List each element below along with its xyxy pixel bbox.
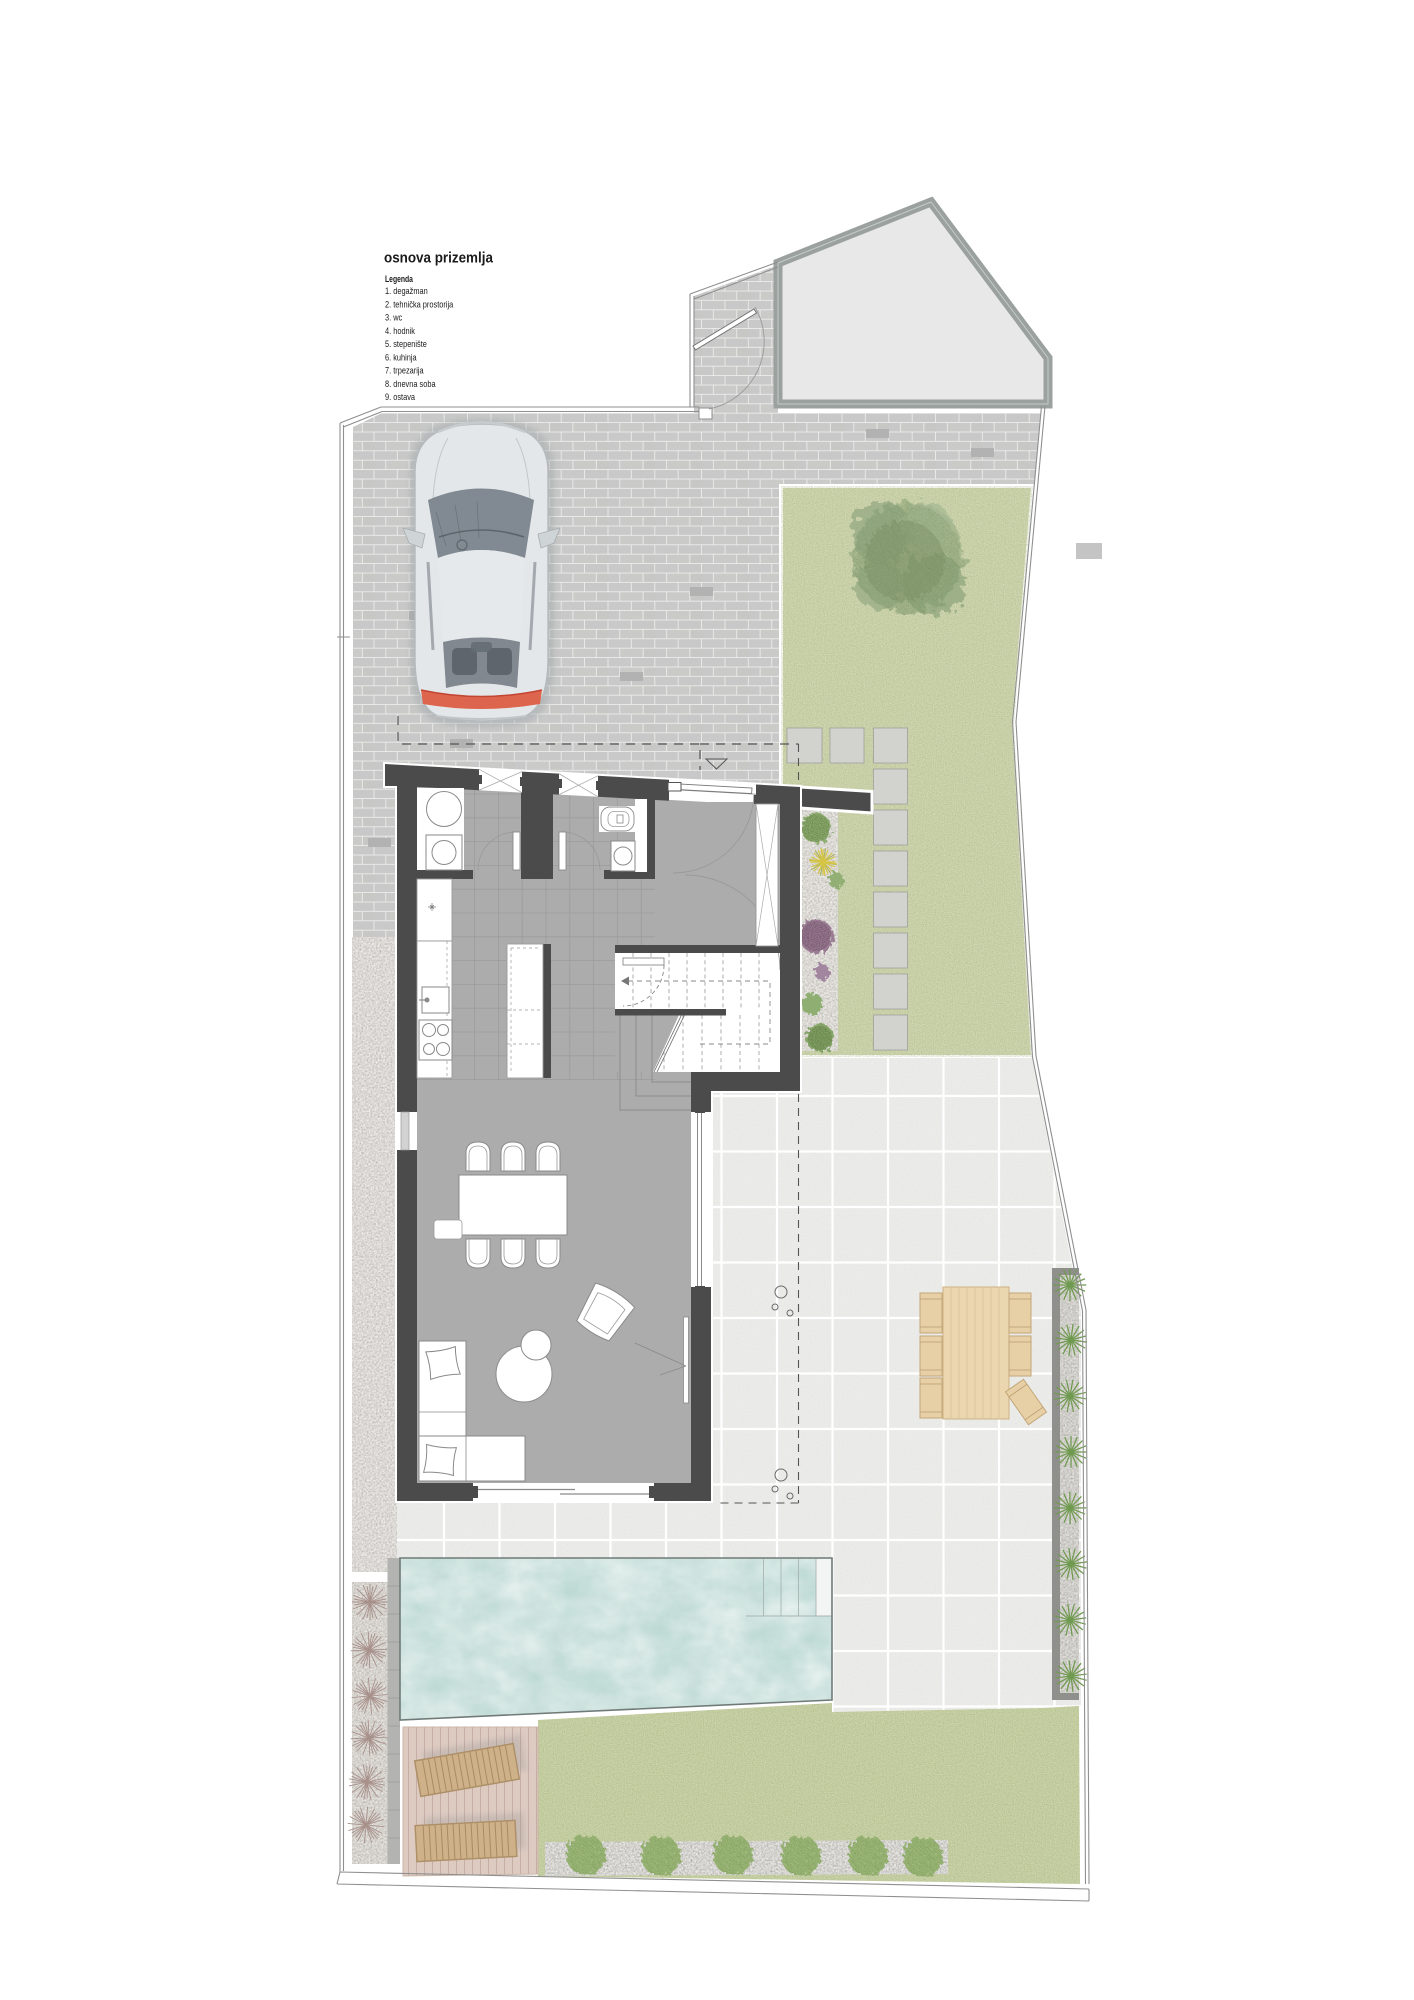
svg-text:osnova prizemlja: osnova prizemlja: [384, 249, 493, 266]
svg-text:2. tehnička prostorija: 2. tehnička prostorija: [385, 298, 453, 309]
svg-text:3. wc: 3. wc: [385, 312, 403, 323]
svg-text:1. degažman: 1. degažman: [385, 285, 428, 296]
svg-text:5. stepenište: 5. stepenište: [385, 338, 427, 349]
svg-text:8. dnevna soba: 8. dnevna soba: [385, 378, 436, 389]
svg-text:Legenda: Legenda: [385, 274, 413, 284]
svg-text:4. hodnik: 4. hodnik: [385, 325, 416, 336]
svg-text:9. ostava: 9. ostava: [385, 391, 415, 402]
svg-text:6. kuhinja: 6. kuhinja: [385, 351, 417, 362]
svg-text:7. trpezarija: 7. trpezarija: [385, 365, 424, 376]
